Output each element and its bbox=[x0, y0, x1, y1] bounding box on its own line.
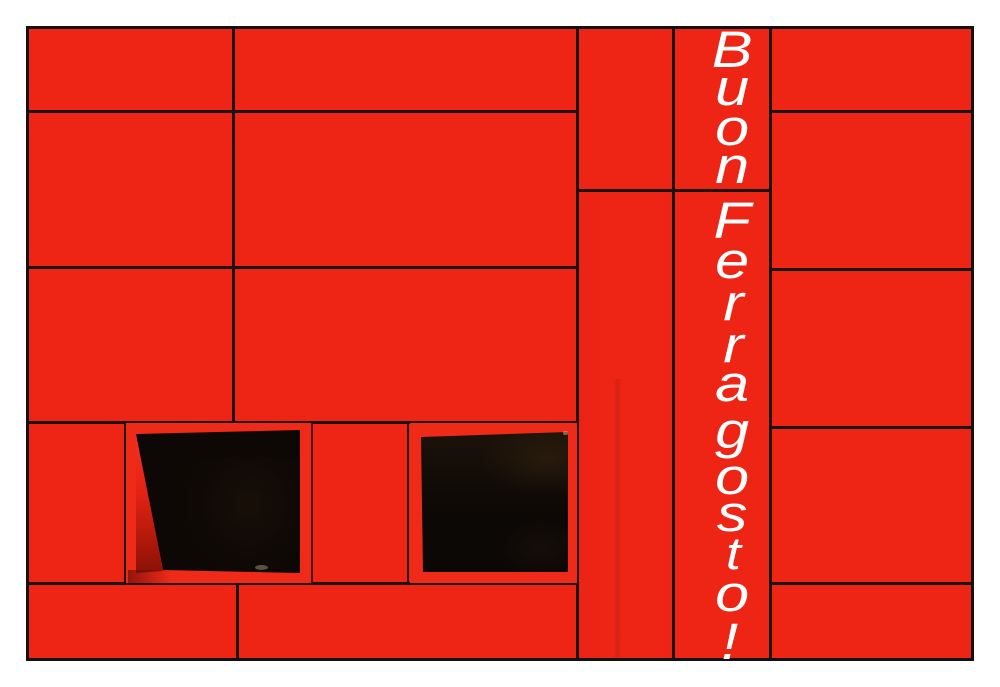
svg-text:n: n bbox=[715, 137, 749, 194]
svg-text:!: ! bbox=[721, 613, 738, 670]
